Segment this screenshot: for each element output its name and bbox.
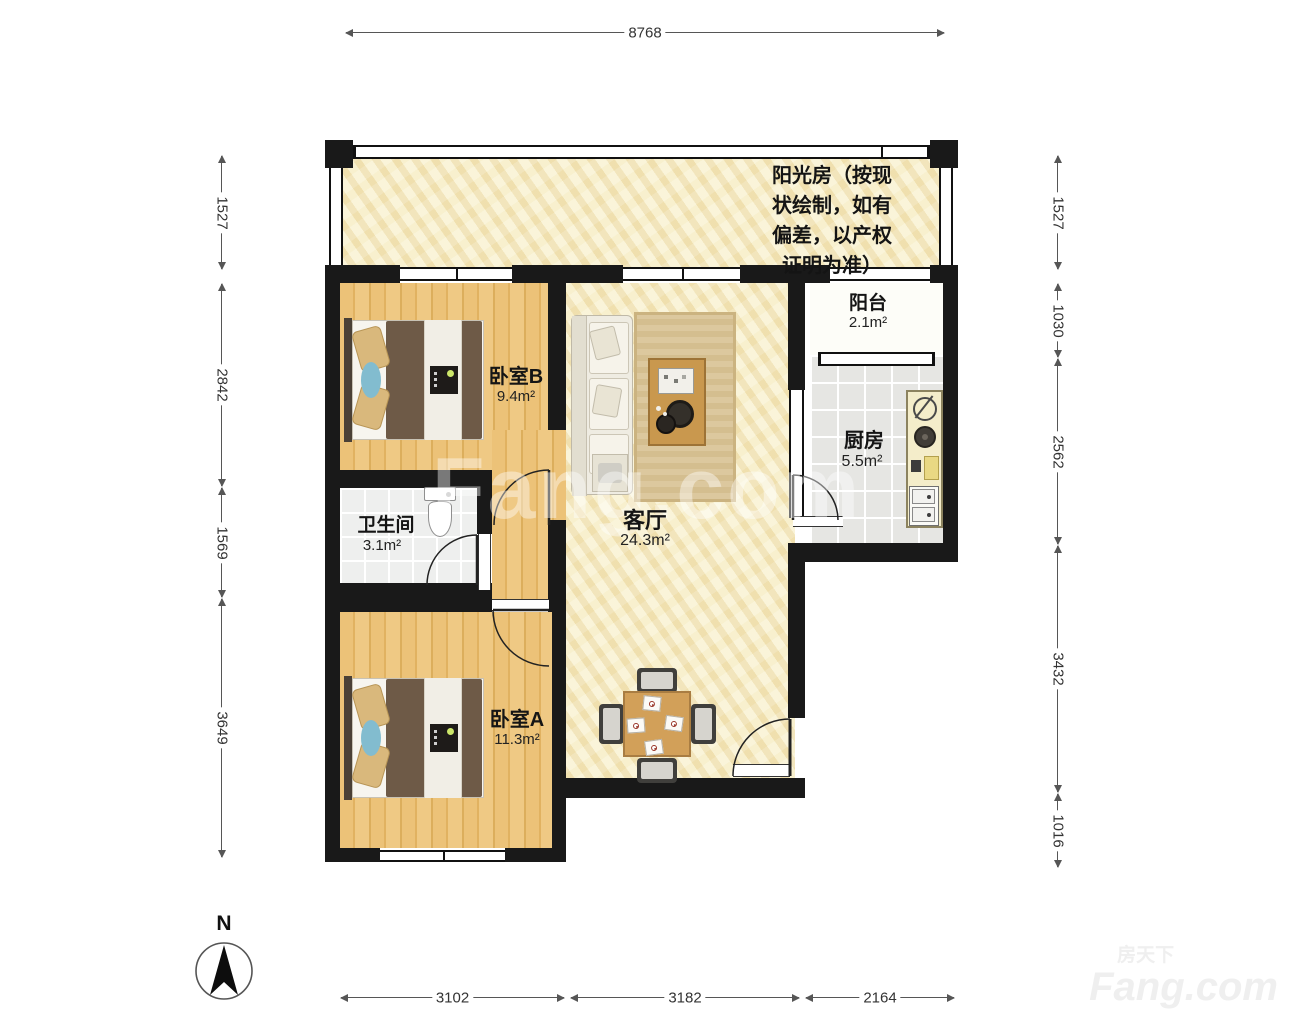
bedroom-a-door-arc (493, 610, 549, 666)
bedroom-a-area: 11.3m² (494, 731, 540, 748)
watermark-en: Fang.com (1089, 967, 1278, 1007)
bathroom-label: 卫生间 (357, 510, 414, 537)
balcony-label: 阳台 (849, 288, 887, 315)
bedroom-b-area: 9.4m² (497, 388, 535, 405)
kitchen-area: 5.5m² (842, 453, 883, 471)
watermark-corner: 房天下 Fang.com (1089, 946, 1278, 1007)
sunroom-note: 阳光房（按现 状绘制，如有 偏差，以产权 证明为准） (746, 161, 918, 281)
living-room-area: 24.3m² (620, 532, 670, 550)
kitchen-door-arc (793, 475, 838, 520)
bedroom-b-door-arc (494, 470, 549, 525)
entrance-door-arc (733, 719, 790, 776)
bedroom-a-label: 卧室A (490, 703, 544, 732)
kitchen-label: 厨房 (844, 424, 884, 453)
bathroom-area: 3.1m² (363, 537, 401, 554)
floor-plan: 阳光房（按现 状绘制，如有 偏差，以产权 证明为准） 阳台 2.1m² 厨房 5… (0, 0, 1290, 1017)
bathroom-door-arc (427, 535, 477, 585)
balcony-area: 2.1m² (849, 314, 887, 331)
bedroom-b-label: 卧室B (489, 360, 543, 389)
north-label: N (193, 914, 255, 934)
watermark-cn: 房天下 (1117, 946, 1278, 965)
north-compass: N (193, 914, 255, 1007)
living-room-label: 客厅 (623, 503, 667, 535)
north-arrow-icon (193, 934, 255, 1002)
